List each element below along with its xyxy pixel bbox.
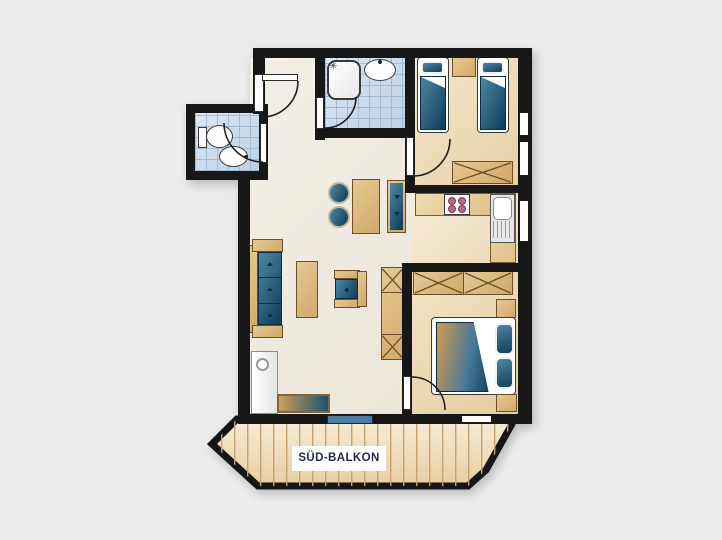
- twin-bedroom-door-arc: [413, 139, 450, 176]
- balcony-label: SÜD-BALKON: [292, 446, 386, 471]
- apartment-floorplan: ✳: [0, 0, 722, 540]
- bathroom-door-arc: [325, 97, 356, 128]
- entry-door-arc: [262, 81, 298, 117]
- floorplan-canvas: ✳: [0, 0, 722, 540]
- wc-door-arc: [224, 123, 263, 162]
- double-bedroom-door-arc: [412, 377, 445, 410]
